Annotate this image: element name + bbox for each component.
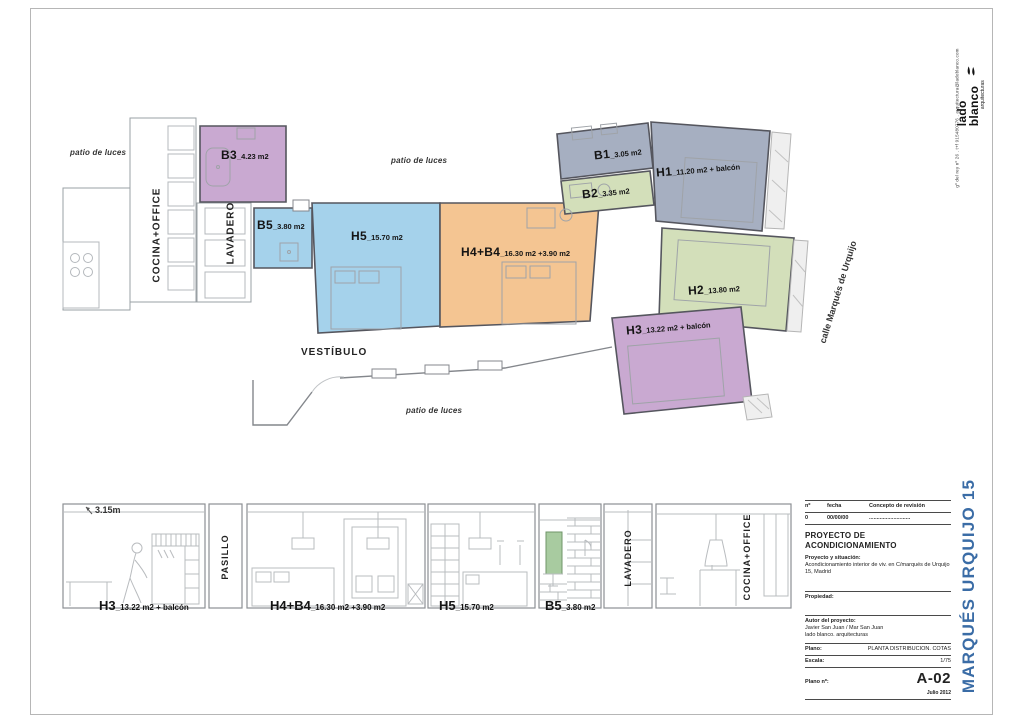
logo-ladoblanco: lado blanco arquitecturas (956, 66, 986, 126)
room-label-h5: H5_15.70 m2 (351, 227, 403, 245)
escala-value: 1/75 (940, 658, 951, 665)
room-area: _15.70 m2 (456, 603, 494, 612)
plano-num-row: Plano nº: A-02 (805, 668, 951, 691)
situacion-value: Acondicionamiento interior de viv. en C/… (805, 562, 951, 576)
rev-num-value: 0 (805, 515, 827, 522)
plano-row: Plano: PLANTA DISTRIBUCION. COTAS (805, 644, 951, 655)
room-code: H4+B4 (461, 245, 500, 259)
revision-header-row: nº fecha Concepto de revisión (805, 501, 951, 512)
logo-subtitle: arquitecturas (981, 80, 986, 109)
elevation-label-h4b4: H4+B4_16.30 m2 +3.90 m2 (270, 597, 385, 615)
logo-title: lado blanco (956, 80, 980, 126)
rev-concepto-header: Concepto de revisión (869, 503, 925, 510)
rev-concepto-value: ........................... (869, 515, 910, 522)
title-block: nº fecha Concepto de revisión 0 00/00/00… (805, 500, 951, 700)
autor-line2: lado blanco. arquitecturas (805, 632, 951, 639)
room-label-h2: H2_13.80 m2 (687, 278, 740, 300)
room-code: H3 (626, 322, 643, 337)
room-code: H3 (99, 598, 116, 613)
divider (805, 524, 951, 525)
cocina-office-label-plan: COCINA+OFFICE (152, 188, 163, 283)
room-area: _3.80 m2 (562, 603, 596, 612)
room-code: B1 (593, 147, 610, 163)
rev-fecha-header: fecha (827, 503, 869, 510)
room-code: H1 (656, 164, 673, 179)
room-area: _3.05 m2 (610, 148, 642, 160)
drawing-sheet: B3_4.23 m2 B5_3.80 m2 H5_15.70 m2 H4+B4_… (0, 0, 1024, 724)
spacer (805, 601, 951, 615)
lavadero-label-plan: LAVADERO (226, 202, 237, 265)
rev-num-header: nº (805, 503, 827, 510)
room-area: _3.35 m2 (598, 187, 630, 199)
patio-de-luces-label-bottom: patio de luces (406, 406, 462, 415)
logo-contact-line: gº del rey nº 26 . t+f 915480776 . arqui… (955, 48, 960, 187)
room-area: _15.70 m2 (367, 233, 403, 242)
room-area: _11.20 m2 + balcón (672, 162, 741, 177)
room-area: _16.30 m2 +3.90 m2 (500, 249, 570, 258)
room-code: B5 (257, 218, 273, 232)
plano-value: PLANTA DISTRIBUCION. COTAS (868, 646, 951, 653)
room-area: _13.22 m2 + balcón (116, 603, 189, 612)
rev-fecha-value: 00/00/00 (827, 515, 869, 522)
room-code: H4+B4 (270, 598, 311, 613)
cocina-office-label-elevation: COCINA+OFFICE (742, 514, 752, 601)
elevation-boxes (63, 504, 791, 608)
room-label-h4b4: H4+B4_16.30 m2 +3.90 m2 (461, 243, 570, 261)
elevation-label-h5: H5_15.70 m2 (439, 597, 494, 615)
autor-line1: Javier San Juan / Mar San Juan (805, 625, 951, 632)
sheet-number: A-02 (916, 670, 951, 689)
room-code: H2 (688, 283, 705, 298)
room-area: _13.22 m2 + balcón (642, 320, 711, 335)
elevation-label-h3: H3_13.22 m2 + balcón (99, 597, 189, 615)
room-area: _13.80 m2 (704, 284, 740, 295)
room-code: B3 (221, 148, 237, 162)
escala-label: Escala: (805, 658, 824, 665)
room-label-b5: B5_3.80 m2 (257, 216, 305, 234)
room-B3-shape (200, 126, 286, 202)
plano-label: Plano: (805, 646, 822, 653)
logo-text: lado blanco arquitecturas (956, 80, 986, 126)
escala-row: Escala: 1/75 (805, 656, 951, 667)
plano-num-label: Plano nº: (805, 679, 829, 686)
spacer (805, 575, 951, 591)
room-area: _3.80 m2 (273, 222, 305, 231)
room-label-b3: B3_4.23 m2 (221, 146, 269, 164)
logo-birds-icon (964, 66, 979, 77)
sheet-date: Julio 2012 (805, 690, 951, 696)
room-code: H5 (439, 598, 456, 613)
divider (805, 699, 951, 700)
room-H4B4-shape (440, 203, 599, 327)
revision-data-row: 0 00/00/00 ........................... (805, 513, 951, 524)
sheet-side-title: MARQUÉS URQUIJO 15 (959, 479, 979, 693)
patio-de-luces-label-left: patio de luces (70, 148, 126, 157)
room-code: H5 (351, 229, 367, 243)
propiedad-label: Propiedad: (805, 592, 951, 601)
patio-de-luces-label-top: patio de luces (391, 156, 447, 165)
project-title: PROYECTO DE ACONDICIONAMIENTO (805, 531, 951, 551)
pasillo-label: PASILLO (220, 534, 230, 579)
situacion-label: Proyecto y situación: (805, 555, 951, 562)
room-code: B2 (581, 186, 598, 202)
autor-label: Autor del proyecto: (805, 616, 951, 625)
room-area: _4.23 m2 (237, 152, 269, 161)
room-code: B5 (545, 598, 562, 613)
room-area: _16.30 m2 +3.90 m2 (311, 603, 386, 612)
elevation-dimension: 3.15m (95, 505, 121, 515)
elevation-label-b5: B5_3.80 m2 (545, 597, 595, 615)
vestibulo-label: VESTÍBULO (301, 347, 367, 358)
lavadero-label-elevation: LAVADERO (623, 529, 633, 586)
